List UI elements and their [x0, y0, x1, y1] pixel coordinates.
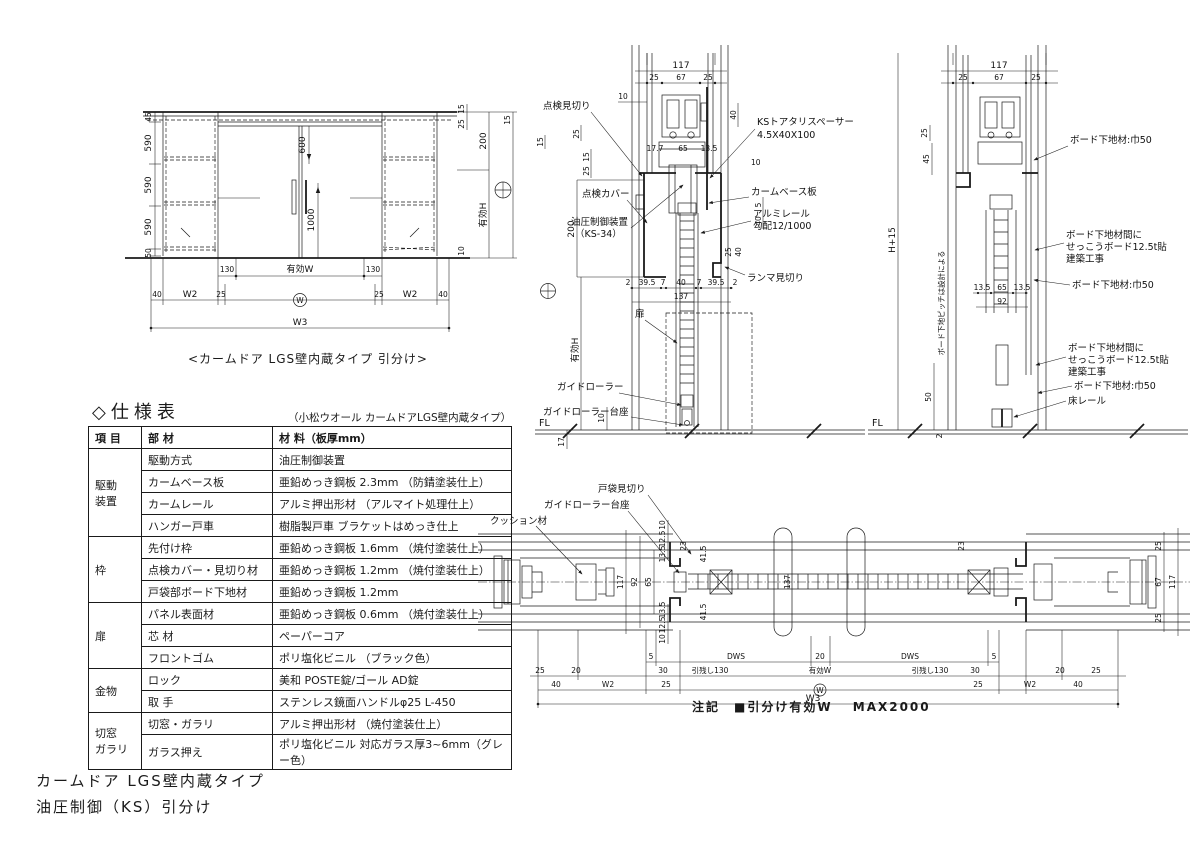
label-cam-base: カームベース板 — [751, 186, 817, 198]
dim-label: 25 — [920, 128, 929, 138]
dim-label: 25 — [1031, 73, 1041, 82]
label-guide-roller-base: ガイドローラー台座 — [543, 406, 629, 418]
dim-label: 12.5 — [658, 616, 667, 633]
dim-label: 590 — [144, 218, 154, 235]
spec-group: 扉 — [89, 603, 142, 669]
table-row: 扉 パネル表面材 亜鉛めっき鋼板 0.6mm （焼付塗装仕上） — [89, 603, 512, 625]
dim-label: 39.5 — [708, 278, 725, 287]
spec-header-material: 材 料（板厚mm） — [273, 427, 512, 449]
dim-label: 5 — [992, 652, 997, 661]
dim-label: 5 — [649, 652, 654, 661]
dim-label: 25 — [724, 247, 733, 257]
dim-label: 2 — [733, 278, 738, 287]
dim-label: 20 — [571, 666, 581, 675]
dim-label: 15 — [536, 137, 545, 147]
spec-material: 樹脂製戸車 ブラケットはめっき仕上 — [273, 515, 512, 537]
label-board-fill-1c: 建築工事 — [1066, 253, 1105, 265]
dim-label: 117 — [616, 575, 625, 590]
dim-label: 92 — [630, 577, 639, 587]
spec-table-subtitle: （小松ウオール カームドアLGS壁内蔵タイプ） — [288, 410, 511, 425]
spec-material: 油圧制御装置 — [273, 449, 512, 471]
dim-label: 130 — [366, 265, 381, 274]
drawing-title-line2: 油圧制御（KS）引分け — [36, 794, 265, 820]
dim-label: 65 — [644, 577, 653, 587]
dim-label: 有効H — [569, 338, 581, 363]
table-row: カームベース板亜鉛めっき鋼板 2.3mm （防錆塗装仕上） — [89, 471, 512, 493]
label-board-fill-1b: せっこうボード12.5t貼 — [1066, 241, 1167, 253]
dim-label: 2 — [935, 433, 944, 438]
dim-label: 17.7 — [647, 144, 664, 153]
section-head-view: 117 25 67 25 10 点検見切り 15 25 15 25 200 点検… — [535, 45, 865, 455]
table-row: ガラス押えポリ塩化ビニル 対応ガラス厚3~6mm（グレー色） — [89, 735, 512, 770]
note-board-pitch: ボード下地ピッチは設計による — [936, 251, 946, 356]
dim-label: 5 — [754, 202, 763, 207]
dim-label: 200 — [479, 132, 489, 149]
spec-part: ハンガー戸車 — [142, 515, 273, 537]
table-row: 金物 ロック 美和 POSTE錠/ゴール AD錠 — [89, 669, 512, 691]
dim-label: 引残し130 — [912, 665, 949, 675]
label-ranma-mikiri: ランマ見切り — [747, 273, 804, 284]
label-board-base-3: ボード下地材:巾50 — [1074, 380, 1156, 392]
table-row: 駆動 装置 駆動方式 油圧制御装置 — [89, 449, 512, 471]
plan-linework — [478, 528, 1190, 636]
label-ks-spacer-2: 4.5X40X100 — [757, 130, 815, 141]
dim-label: 117 — [1168, 575, 1177, 590]
dim-label: 40 — [551, 680, 561, 689]
label-yuatsu-2: （KS-34） — [575, 228, 622, 240]
dim-label: 15 — [582, 152, 591, 162]
section-pocket-view: 117 25 67 25 25 45 H+15 ボード下地ピッチは設計による 5… — [868, 45, 1188, 455]
spec-group: 切窓 ガラリ — [89, 713, 142, 770]
elevation-linework — [125, 112, 470, 258]
spec-material: 亜鉛めっき鋼板 1.6mm （焼付塗装仕上） — [273, 537, 512, 559]
floor-level-label: FL — [872, 418, 883, 429]
dim-label: 600 — [298, 136, 308, 153]
drawing-sheet: 45 590 590 590 50 600 1000 130 有効W 130 — [0, 0, 1191, 842]
dim-label: 25 — [703, 73, 713, 82]
dim-label: 40 — [438, 290, 448, 299]
dim-label: 130 — [220, 265, 235, 274]
spec-part: 取 手 — [142, 691, 273, 713]
spec-group: 金物 — [89, 669, 142, 713]
dim-label: 25 — [582, 166, 591, 176]
dim-label: 45 — [144, 112, 153, 122]
dim-label: 25 — [572, 129, 581, 139]
dim-label: 12.5 — [658, 530, 667, 547]
dim-label: 13.5 — [974, 283, 991, 292]
table-row: 枠 先付け枠 亜鉛めっき鋼板 1.6mm （焼付塗装仕上） — [89, 537, 512, 559]
label-floor-rail: 床レール — [1068, 395, 1107, 407]
dim-label: 10 — [658, 634, 667, 644]
dim-label: 15 — [457, 104, 466, 114]
dim-label: 25 — [1154, 613, 1163, 623]
dim-label-circled-w: W — [296, 296, 304, 305]
label-pocket-trim: 戸袋見切り — [598, 483, 646, 495]
spec-part: パネル表面材 — [142, 603, 273, 625]
label-guide-roller-base: ガイドローラー台座 — [544, 499, 630, 511]
spec-material: ポリ塩化ビニル 対応ガラス厚3~6mm（グレー色） — [273, 735, 512, 770]
label-board-base-1: ボード下地材:巾50 — [1070, 134, 1152, 146]
dim-label: H+15 — [888, 227, 898, 253]
elevation-dimensions: 45 590 590 590 50 600 1000 130 有効W 130 — [144, 104, 517, 332]
spec-header-item: 項 目 — [89, 427, 142, 449]
dim-label: 有効W — [287, 263, 314, 275]
label-yuatsu-1: 油圧制御装置 — [571, 216, 628, 228]
label-board-fill-2a: ボード下地材間に — [1068, 342, 1144, 354]
spec-material: 亜鉛めっき鋼板 0.6mm （焼付塗装仕上） — [273, 603, 512, 625]
spec-part: ロック — [142, 669, 273, 691]
table-row: 点検カバー・見切り材亜鉛めっき鋼板 1.2mm （焼付塗装仕上） — [89, 559, 512, 581]
dim-label: 25 — [958, 73, 968, 82]
spec-material: 亜鉛めっき鋼板 1.2mm — [273, 581, 512, 603]
dim-label: 13.5 — [701, 144, 718, 153]
spec-table: 項 目 部 材 材 料（板厚mm） 駆動 装置 駆動方式 油圧制御装置 カームベ… — [88, 426, 512, 770]
section-pocket-annotations: 117 25 67 25 25 45 H+15 ボード下地ピッチは設計による 5… — [872, 53, 1169, 438]
dim-label: 13.5 — [1014, 283, 1031, 292]
elevation-view: 45 590 590 590 50 600 1000 130 有効W 130 — [85, 60, 525, 350]
dim-label: 20 — [1055, 666, 1065, 675]
dim-label: 40 — [1073, 680, 1083, 689]
spec-part: 芯 材 — [142, 625, 273, 647]
dim-label: 25 — [374, 290, 384, 299]
dim-label: 137 — [674, 292, 689, 301]
spec-part: ガラス押え — [142, 735, 273, 770]
floor-level-label: FL — [539, 418, 550, 429]
spec-part: カームレール — [142, 493, 273, 515]
dim-label: 40 — [754, 216, 763, 226]
label-board-fill-1a: ボード下地材間に — [1066, 229, 1142, 241]
dim-label: W2 — [183, 290, 198, 300]
table-row: ハンガー戸車樹脂製戸車 ブラケットはめっき仕上 — [89, 515, 512, 537]
dim-label: 92 — [997, 297, 1007, 306]
dim-label: 25 — [1091, 666, 1101, 675]
dim-label: 1000 — [307, 208, 317, 231]
title-block: カームドア LGS壁内蔵タイプ 油圧制御（KS）引分け — [36, 768, 265, 820]
table-row: 取 手ステンレス鏡面ハンドルφ25 L-450 — [89, 691, 512, 713]
dim-label: 40 — [729, 110, 738, 120]
spec-group: 駆動 装置 — [89, 449, 142, 537]
spec-part: フロントゴム — [142, 647, 273, 669]
dim-label: DWS — [727, 652, 745, 661]
spec-part: 戸袋部ボード下地材 — [142, 581, 273, 603]
spec-group: 枠 — [89, 537, 142, 603]
spec-material: アルミ押出形材 （アルマイト処理仕上） — [273, 493, 512, 515]
dim-label: 590 — [144, 176, 154, 193]
dim-label: 67 — [1154, 577, 1163, 587]
dim-label: 25 — [649, 73, 659, 82]
spec-material: ポリ塩化ビニル （ブラック色） — [273, 647, 512, 669]
dim-label: 17 — [557, 437, 566, 447]
table-row: 戸袋部ボード下地材亜鉛めっき鋼板 1.2mm — [89, 581, 512, 603]
dim-label: 25 — [457, 119, 466, 129]
dim-label: DWS — [901, 652, 919, 661]
dim-label: 590 — [144, 134, 154, 151]
dim-label: 30 — [970, 666, 980, 675]
dim-label: 40 — [734, 247, 743, 257]
section-mark-icon — [495, 182, 511, 198]
label-door-leaf: 扉 — [635, 308, 645, 320]
dim-label: W3 — [293, 318, 308, 328]
section-head-annotations: 117 25 67 25 10 点検見切り 15 25 15 25 200 点検… — [536, 53, 854, 449]
dim-label: 10 — [597, 413, 606, 423]
dim-label: 30 — [658, 666, 668, 675]
dim-label: W2 — [602, 680, 614, 689]
dim-label: 117 — [990, 61, 1007, 71]
plan-note: 注記 ■引分け有効W MAX2000 — [692, 698, 931, 715]
dim-label: 20 — [815, 652, 825, 661]
spec-material: アルミ押出形材 （焼付塗装仕上） — [273, 713, 512, 735]
dim-label: 137 — [783, 575, 792, 590]
spec-material: 美和 POSTE錠/ゴール AD錠 — [273, 669, 512, 691]
dim-label: 67 — [994, 73, 1004, 82]
elevation-caption: <カームドア LGS壁内蔵タイプ 引分け> — [168, 350, 448, 367]
spec-material: ペーパーコア — [273, 625, 512, 647]
dim-label: 40 — [676, 278, 686, 287]
dim-label: 7 — [661, 278, 666, 287]
dim-label: 41.5 — [699, 603, 708, 620]
dim-label: 67 — [676, 73, 686, 82]
dim-label: 23 — [957, 541, 966, 551]
label-board-fill-2b: せっこうボード12.5t貼 — [1068, 354, 1169, 366]
dim-label: 117 — [672, 61, 689, 71]
section-mark-icon — [541, 284, 556, 299]
table-row: フロントゴムポリ塩化ビニル （ブラック色） — [89, 647, 512, 669]
dim-label: 10 — [751, 158, 761, 167]
spec-material: ステンレス鏡面ハンドルφ25 L-450 — [273, 691, 512, 713]
spec-header-row: 項 目 部 材 材 料（板厚mm） — [89, 427, 512, 449]
dim-label: 25 — [535, 666, 545, 675]
label-ks-spacer-1: KSトアタリスペーサー — [757, 117, 854, 128]
table-row: 切窓 ガラリ 切窓・ガラリ アルミ押出形材 （焼付塗装仕上） — [89, 713, 512, 735]
drawing-title-line1: カームドア LGS壁内蔵タイプ — [36, 768, 265, 794]
label-tenken-cover: 点検カバー — [582, 188, 630, 200]
spec-part: 駆動方式 — [142, 449, 273, 471]
dim-label: 15 — [503, 115, 512, 125]
dim-label: 10 — [457, 246, 466, 256]
spec-material: 亜鉛めっき鋼板 1.2mm （焼付塗装仕上） — [273, 559, 512, 581]
dim-label: 65 — [997, 283, 1007, 292]
dim-label: 23 — [679, 541, 688, 551]
dim-label: 有効W — [809, 665, 832, 675]
table-row: 芯 材ペーパーコア — [89, 625, 512, 647]
dim-label: 有効H — [477, 203, 489, 228]
label-tenken-mikiri: 点検見切り — [543, 100, 591, 112]
dim-label: 10 — [618, 92, 628, 101]
dim-label: 39.5 — [639, 278, 656, 287]
dim-label: 10 — [658, 520, 667, 530]
spec-table-title: ◇仕様表 — [92, 398, 180, 424]
spec-part: カームベース板 — [142, 471, 273, 493]
spec-part: 先付け枠 — [142, 537, 273, 559]
table-row: カームレールアルミ押出形材 （アルマイト処理仕上） — [89, 493, 512, 515]
dim-label: 13.5 — [658, 601, 667, 618]
dim-label: W2 — [403, 290, 418, 300]
spec-material: 亜鉛めっき鋼板 2.3mm （防錆塗装仕上） — [273, 471, 512, 493]
label-board-base-2: ボード下地材:巾50 — [1072, 279, 1154, 291]
dim-label: 65 — [678, 144, 688, 153]
dim-label: 25 — [973, 680, 983, 689]
label-board-fill-2c: 建築工事 — [1068, 366, 1107, 378]
dim-label: 13.5 — [658, 545, 667, 562]
dim-label: 25 — [1154, 541, 1163, 551]
dim-label: 7 — [697, 278, 702, 287]
dim-label: 25 — [216, 290, 226, 299]
spec-header-part: 部 材 — [142, 427, 273, 449]
dim-label: 引残し130 — [692, 665, 729, 675]
dim-label: 41.5 — [699, 545, 708, 562]
dim-label: 2 — [626, 278, 631, 287]
dim-label: 25 — [661, 680, 671, 689]
dim-label: 50 — [144, 248, 153, 258]
dim-label: 40 — [152, 290, 162, 299]
dim-label: 45 — [922, 154, 931, 164]
dim-label: W2 — [1024, 680, 1036, 689]
dim-label: 50 — [924, 392, 933, 402]
plan-annotations: クッション材 ガイドローラー台座 戸袋見切り 117 92 65 10 12.5… — [490, 483, 1178, 708]
spec-part: 点検カバー・見切り材 — [142, 559, 273, 581]
label-guide-roller: ガイドローラー — [557, 382, 624, 393]
spec-part: 切窓・ガラリ — [142, 713, 273, 735]
plan-section-view: クッション材 ガイドローラー台座 戸袋見切り 117 92 65 10 12.5… — [478, 462, 1190, 720]
